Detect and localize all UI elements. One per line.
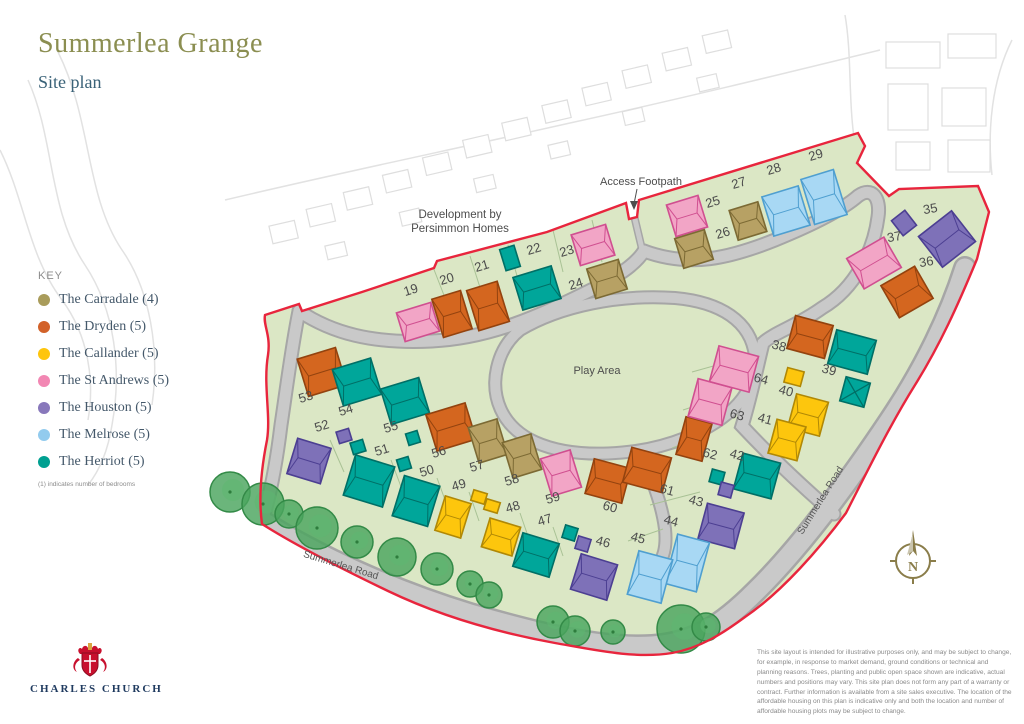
key-list: The Carradale (4)The Dryden (5)The Calla…	[38, 292, 228, 470]
page-title: Summerlea Grange	[38, 28, 263, 60]
key-item: The Carradale (4)	[38, 292, 228, 308]
key-item-label: The Callander (5)	[59, 346, 159, 362]
plot-number: 37	[886, 228, 903, 245]
garage-houston	[575, 536, 591, 552]
key-color-dot	[38, 402, 50, 414]
key-note: (1) indicates number of bedrooms	[38, 481, 228, 488]
charles-church-logo: CHARLES CHURCH	[30, 642, 150, 695]
garage-herriot	[406, 431, 421, 446]
tree-icon	[601, 620, 625, 644]
key-item-label: The Dryden (5)	[59, 319, 146, 335]
access-footpath-label: Access Footpath	[600, 176, 682, 188]
garage-houston	[718, 482, 734, 498]
tree-icon	[421, 553, 453, 585]
key-item: The St Andrews (5)	[38, 373, 228, 389]
persimmon-label-line1: Development by	[418, 209, 501, 221]
garage-herriot	[562, 525, 578, 541]
key-item: The Houston (5)	[38, 400, 228, 416]
key-color-dot	[38, 375, 50, 387]
tree-icon	[476, 582, 502, 608]
charles-church-wordmark: CHARLES CHURCH	[30, 683, 150, 695]
plot-number: 35	[922, 200, 939, 217]
garage-houston	[336, 428, 352, 443]
key-color-dot	[38, 456, 50, 468]
persimmon-label-line2: Persimmon Homes	[411, 223, 509, 235]
key-color-dot	[38, 321, 50, 333]
tree-icon	[560, 616, 590, 646]
key-item-label: The Melrose (5)	[59, 427, 150, 443]
site-plan-page: 1920212223242526272829353637383940414243…	[0, 0, 1024, 724]
access-footpath-leader	[630, 189, 638, 210]
plot-number: 36	[918, 253, 935, 270]
key-item: The Callander (5)	[38, 346, 228, 362]
disclaimer-text: This site layout is intended for illustr…	[757, 648, 1013, 717]
key-item-label: The St Andrews (5)	[59, 373, 169, 389]
charles-church-crest-icon	[68, 642, 112, 680]
garage-herriot	[840, 377, 871, 408]
key-heading: KEY	[38, 270, 228, 282]
key-color-dot	[38, 348, 50, 360]
key-item: The Melrose (5)	[38, 427, 228, 443]
key-item-label: The Carradale (4)	[59, 292, 159, 308]
key-color-dot	[38, 294, 50, 306]
key-color-dot	[38, 429, 50, 441]
map-key: KEY The Carradale (4)The Dryden (5)The C…	[38, 270, 228, 488]
page-subtitle: Site plan	[38, 72, 102, 93]
garage-herriot	[350, 439, 366, 454]
key-item: The Dryden (5)	[38, 319, 228, 335]
key-item-label: The Herriot (5)	[59, 454, 145, 470]
tree-icon	[378, 538, 416, 576]
key-item: The Herriot (5)	[38, 454, 228, 470]
garage-herriot	[397, 457, 412, 472]
north-compass: N	[890, 530, 936, 584]
tree-icon	[296, 507, 338, 549]
compass-n: N	[908, 560, 918, 575]
key-item-label: The Houston (5)	[59, 400, 152, 416]
play-area-label: Play Area	[573, 365, 621, 377]
tree-icon	[341, 526, 373, 558]
